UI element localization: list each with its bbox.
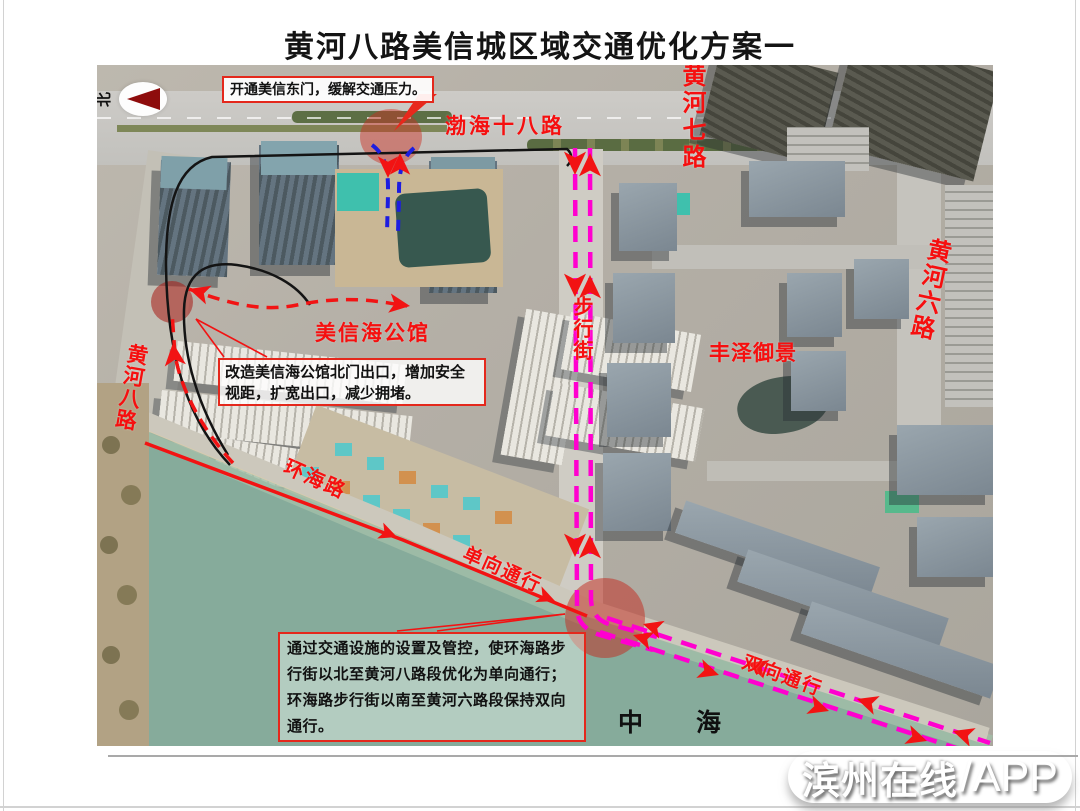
label-meixinhai-mansion: 美信海公馆 — [315, 317, 430, 347]
label-pedestrian-street: 步行街 — [567, 296, 596, 362]
route-outline-black — [166, 149, 571, 465]
aerial-map: 北 渤海十八路 黄河七路 黄河六路 黄河八路 步行街 环海路 美信海公馆 丰泽御… — [97, 65, 993, 746]
label-fengze-yujing: 丰泽御景 — [709, 337, 797, 367]
watermark-brand: 滨州在线 — [802, 750, 958, 805]
note-east-gate: 开通美信东门，缓解交通压力。 — [222, 76, 434, 103]
compass-north-label: 北 — [97, 92, 114, 107]
highlight-circle-east-gate — [360, 109, 422, 165]
traffic-plan-slide: 黄河八路美信城区域交通优化方案一 — [0, 0, 1080, 811]
leader-north-exit — [196, 319, 267, 357]
note-north-exit: 改造美信海公馆北门出口，增加安全视距，扩宽出口，减少拥堵。 — [218, 358, 486, 406]
compass-needle-icon — [127, 88, 160, 110]
note-huanhai-control: 通过交通设施的设置及管控，使环海路步行街以北至黄河八路段优化为单向通行；环海路步… — [278, 632, 586, 742]
page-title: 黄河八路美信城区域交通优化方案一 — [0, 22, 1080, 66]
frame-left-line — [3, 0, 4, 811]
label-sea: 中 海 — [618, 703, 735, 739]
watermark-suffix: /APP — [960, 753, 1058, 802]
leader-huanhai — [397, 614, 565, 631]
label-huanghe7-road: 黄河七路 — [674, 65, 709, 171]
frame-bottom-line — [0, 806, 1080, 808]
frame-right-line — [1075, 0, 1076, 811]
label-bohai18-road: 渤海十八路 — [445, 110, 565, 140]
watermark: 滨州在线 /APP — [788, 751, 1072, 803]
